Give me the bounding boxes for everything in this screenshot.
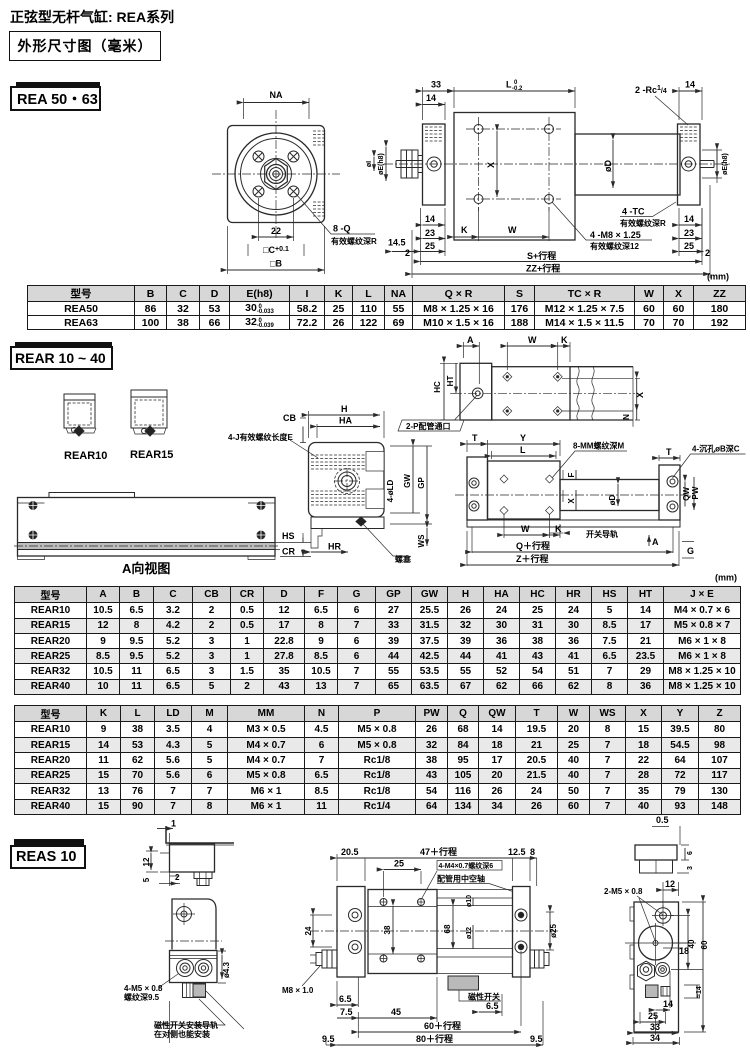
svg-text:6: 6 (687, 851, 694, 855)
svg-text:12: 12 (142, 857, 151, 866)
svg-text:有效螺纹深12: 有效螺纹深12 (590, 241, 639, 251)
svg-text:45: 45 (391, 1007, 401, 1017)
svg-text:1: 1 (171, 819, 176, 829)
svg-text:T: T (472, 433, 478, 443)
svg-text:X: X (635, 392, 645, 398)
svg-text:øI: øI (366, 161, 373, 167)
svg-text:60＋行程: 60＋行程 (424, 1020, 461, 1031)
svg-text:(mm): (mm) (715, 573, 737, 583)
svg-text:14: 14 (684, 214, 694, 224)
svg-text:14: 14 (663, 999, 673, 1009)
svg-text:WS: WS (417, 534, 426, 548)
svg-text:有效螺纹深R: 有效螺纹深R (331, 236, 377, 246)
svg-text:4 -TC: 4 -TC (622, 207, 645, 217)
svg-text:CR: CR (282, 547, 295, 557)
svg-text:螺纹深9.5: 螺纹深9.5 (124, 992, 160, 1002)
svg-text:-0.2: -0.2 (512, 86, 523, 92)
svg-text:N: N (622, 414, 631, 420)
svg-text:øE(h8): øE(h8) (722, 153, 729, 175)
svg-text:18: 18 (679, 946, 689, 956)
svg-text:≈14: ≈14 (696, 986, 703, 998)
svg-text:80＋行程: 80＋行程 (416, 1033, 453, 1044)
svg-text:4-øLD: 4-øLD (386, 479, 395, 502)
svg-text:K: K (555, 524, 562, 534)
svg-text:4-M4×0.7螺纹深6: 4-M4×0.7螺纹深6 (439, 861, 494, 870)
svg-text:磁性开关: 磁性开关 (468, 992, 500, 1002)
svg-text:螺塞: 螺塞 (395, 554, 412, 564)
svg-text:60: 60 (700, 940, 709, 949)
svg-text:14: 14 (426, 93, 436, 103)
svg-text:2 -Rc1/4: 2 -Rc1/4 (635, 85, 667, 95)
svg-text:øE(h8): øE(h8) (378, 153, 385, 175)
svg-text:14: 14 (685, 80, 695, 90)
svg-text:NA: NA (270, 90, 283, 100)
svg-text:ø25: ø25 (549, 924, 558, 938)
svg-text:12.5: 12.5 (508, 847, 526, 857)
svg-text:CB: CB (283, 413, 296, 423)
svg-text:PW: PW (691, 486, 700, 499)
svg-text:X: X (486, 162, 496, 168)
svg-text:□B: □B (270, 259, 282, 269)
svg-text:GW: GW (403, 474, 412, 488)
svg-text:0.5: 0.5 (656, 815, 669, 825)
svg-text:H: H (341, 404, 348, 414)
svg-text:6.5: 6.5 (339, 994, 352, 1004)
svg-text:F: F (567, 472, 576, 477)
svg-text:K: K (561, 335, 568, 345)
svg-text:在对侧也能安装: 在对侧也能安装 (154, 1029, 210, 1039)
svg-text:47＋行程: 47＋行程 (420, 846, 457, 857)
svg-text:2: 2 (705, 248, 710, 258)
svg-text:Y: Y (520, 433, 526, 443)
svg-text:24: 24 (304, 926, 313, 935)
svg-text:W: W (508, 225, 517, 235)
svg-text:25: 25 (394, 859, 404, 869)
svg-text:25: 25 (684, 241, 694, 251)
svg-text:W: W (521, 524, 530, 534)
svg-text:ø12: ø12 (466, 927, 473, 939)
svg-text:23: 23 (684, 228, 694, 238)
svg-text:M8 × 1.0: M8 × 1.0 (282, 986, 314, 995)
svg-text:A: A (652, 537, 659, 547)
svg-text:33: 33 (650, 1022, 660, 1032)
svg-text:25: 25 (425, 241, 435, 251)
svg-text:6.5: 6.5 (486, 1001, 499, 1011)
svg-text:4-J有效螺纹长度E: 4-J有效螺纹长度E (228, 432, 294, 442)
svg-text:HR: HR (328, 542, 341, 552)
svg-text:Q＋行程: Q＋行程 (516, 540, 550, 551)
svg-text:Z＋行程: Z＋行程 (516, 553, 549, 564)
svg-text:□C+0.1: □C+0.1 (263, 245, 289, 255)
svg-text:ZZ+行程: ZZ+行程 (526, 263, 560, 274)
svg-text:14.5: 14.5 (388, 238, 406, 248)
svg-text:T: T (666, 447, 672, 457)
svg-text:有效螺纹深R: 有效螺纹深R (620, 218, 666, 228)
svg-text:4 -M8 × 1.25: 4 -M8 × 1.25 (590, 230, 641, 240)
svg-text:磁性开关安装导轨: 磁性开关安装导轨 (154, 1020, 218, 1030)
svg-text:38: 38 (383, 925, 392, 934)
svg-text:K: K (461, 225, 468, 235)
svg-text:HT: HT (446, 376, 455, 387)
svg-text:ø10: ø10 (466, 895, 473, 907)
svg-text:7.5: 7.5 (340, 1007, 353, 1017)
svg-text:34: 34 (650, 1033, 660, 1043)
svg-text:5: 5 (142, 877, 151, 882)
svg-text:23: 23 (425, 228, 435, 238)
svg-text:(mm): (mm) (707, 272, 729, 282)
svg-text:4-M5 × 0.8: 4-M5 × 0.8 (124, 984, 163, 993)
svg-text:25: 25 (648, 1011, 658, 1021)
svg-text:4-沉孔øB深C: 4-沉孔øB深C (692, 444, 740, 454)
svg-text:L: L (520, 445, 526, 455)
svg-text:øD: øD (603, 160, 613, 172)
svg-text:12: 12 (665, 879, 675, 889)
svg-text:9.5: 9.5 (322, 1034, 335, 1044)
svg-text:HC: HC (433, 381, 442, 393)
svg-text:X: X (567, 498, 576, 504)
svg-text:2: 2 (405, 248, 410, 258)
svg-text:HA: HA (339, 416, 352, 426)
svg-text:GP: GP (417, 477, 426, 489)
svg-text:S+行程: S+行程 (527, 250, 556, 261)
svg-text:2-P配管通口: 2-P配管通口 (406, 421, 450, 431)
svg-text:33: 33 (431, 80, 441, 90)
svg-text:G: G (687, 546, 694, 556)
svg-text:3: 3 (687, 866, 694, 870)
svg-text:øD: øD (608, 494, 617, 505)
svg-text:8-MM螺纹深M: 8-MM螺纹深M (573, 441, 624, 451)
svg-text:2: 2 (175, 873, 180, 882)
svg-text:ø4.3: ø4.3 (222, 961, 231, 978)
svg-text:配管用中空轴: 配管用中空轴 (437, 874, 485, 884)
svg-text:开关导轨: 开关导轨 (586, 529, 618, 539)
svg-text:22: 22 (271, 226, 281, 236)
svg-text:W: W (528, 335, 537, 345)
svg-text:9.5: 9.5 (530, 1034, 543, 1044)
svg-text:20.5: 20.5 (341, 847, 359, 857)
svg-text:QW: QW (682, 487, 691, 501)
svg-text:8: 8 (530, 847, 535, 857)
svg-text:8 -Q: 8 -Q (333, 224, 351, 234)
svg-text:HS: HS (282, 531, 295, 541)
svg-text:A: A (467, 335, 474, 345)
svg-text:2-M5 × 0.8: 2-M5 × 0.8 (604, 887, 643, 896)
svg-text:68: 68 (443, 924, 452, 933)
svg-text:14: 14 (425, 214, 435, 224)
